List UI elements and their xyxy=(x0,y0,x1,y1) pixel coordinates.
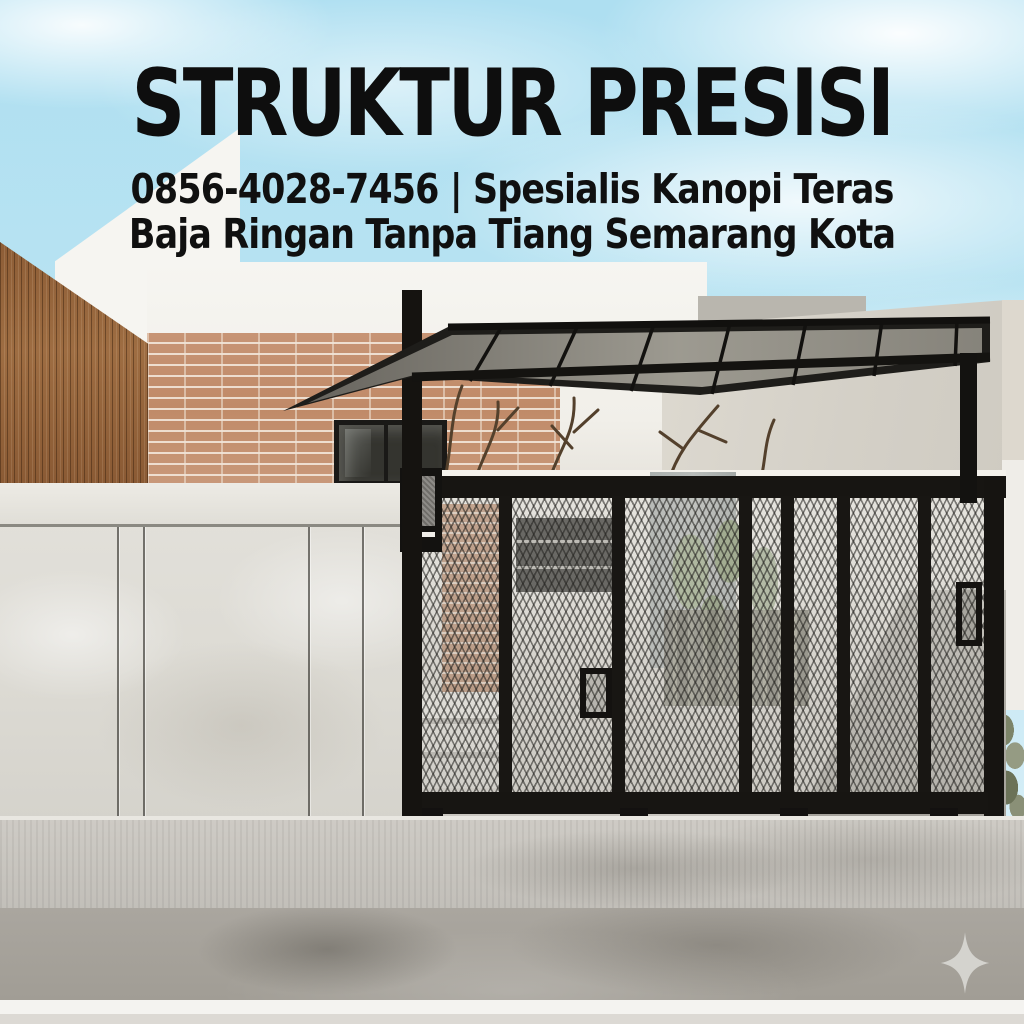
gate-handle-left xyxy=(580,668,612,718)
road-asphalt xyxy=(0,908,1024,1000)
fence-groove xyxy=(143,527,145,816)
fence-groove xyxy=(308,527,310,816)
gate-mullion xyxy=(739,496,752,796)
headline: STRUKTUR PRESISI xyxy=(102,56,921,151)
gate-mullion xyxy=(918,496,931,796)
driveway-road xyxy=(0,816,1024,1024)
gate-mullion xyxy=(837,496,850,796)
cantilever-canopy xyxy=(260,295,1024,505)
four-point-sparkle-icon xyxy=(938,930,992,996)
fence-groove xyxy=(362,527,364,816)
gate-bottom-rail xyxy=(418,792,988,814)
subtitle-line-1: 0856-4028-7456 | Spesialis Kanopi Teras xyxy=(77,167,947,212)
gate-handle-right xyxy=(956,582,982,646)
fence-groove xyxy=(117,527,119,816)
road-bottom-edge xyxy=(0,1014,1024,1024)
road-apron xyxy=(0,816,1024,908)
gate-mullion xyxy=(781,496,794,796)
promo-image-canvas: STRUKTUR PRESISI 0856-4028-7456 | Spesia… xyxy=(0,0,1024,1024)
gate-mullion xyxy=(499,496,512,796)
overlay-text-block: STRUKTUR PRESISI 0856-4028-7456 | Spesia… xyxy=(0,56,1024,257)
subtitle-line-2: Baja Ringan Tanpa Tiang Semarang Kota xyxy=(77,212,947,257)
canopy-right-post xyxy=(960,353,977,503)
gate-right-post xyxy=(984,476,1004,816)
steel-mesh-gate xyxy=(402,470,1006,822)
gate-mullion xyxy=(612,496,625,796)
road-bottom-light-strip xyxy=(0,1000,1024,1014)
concrete-fence xyxy=(0,483,402,820)
